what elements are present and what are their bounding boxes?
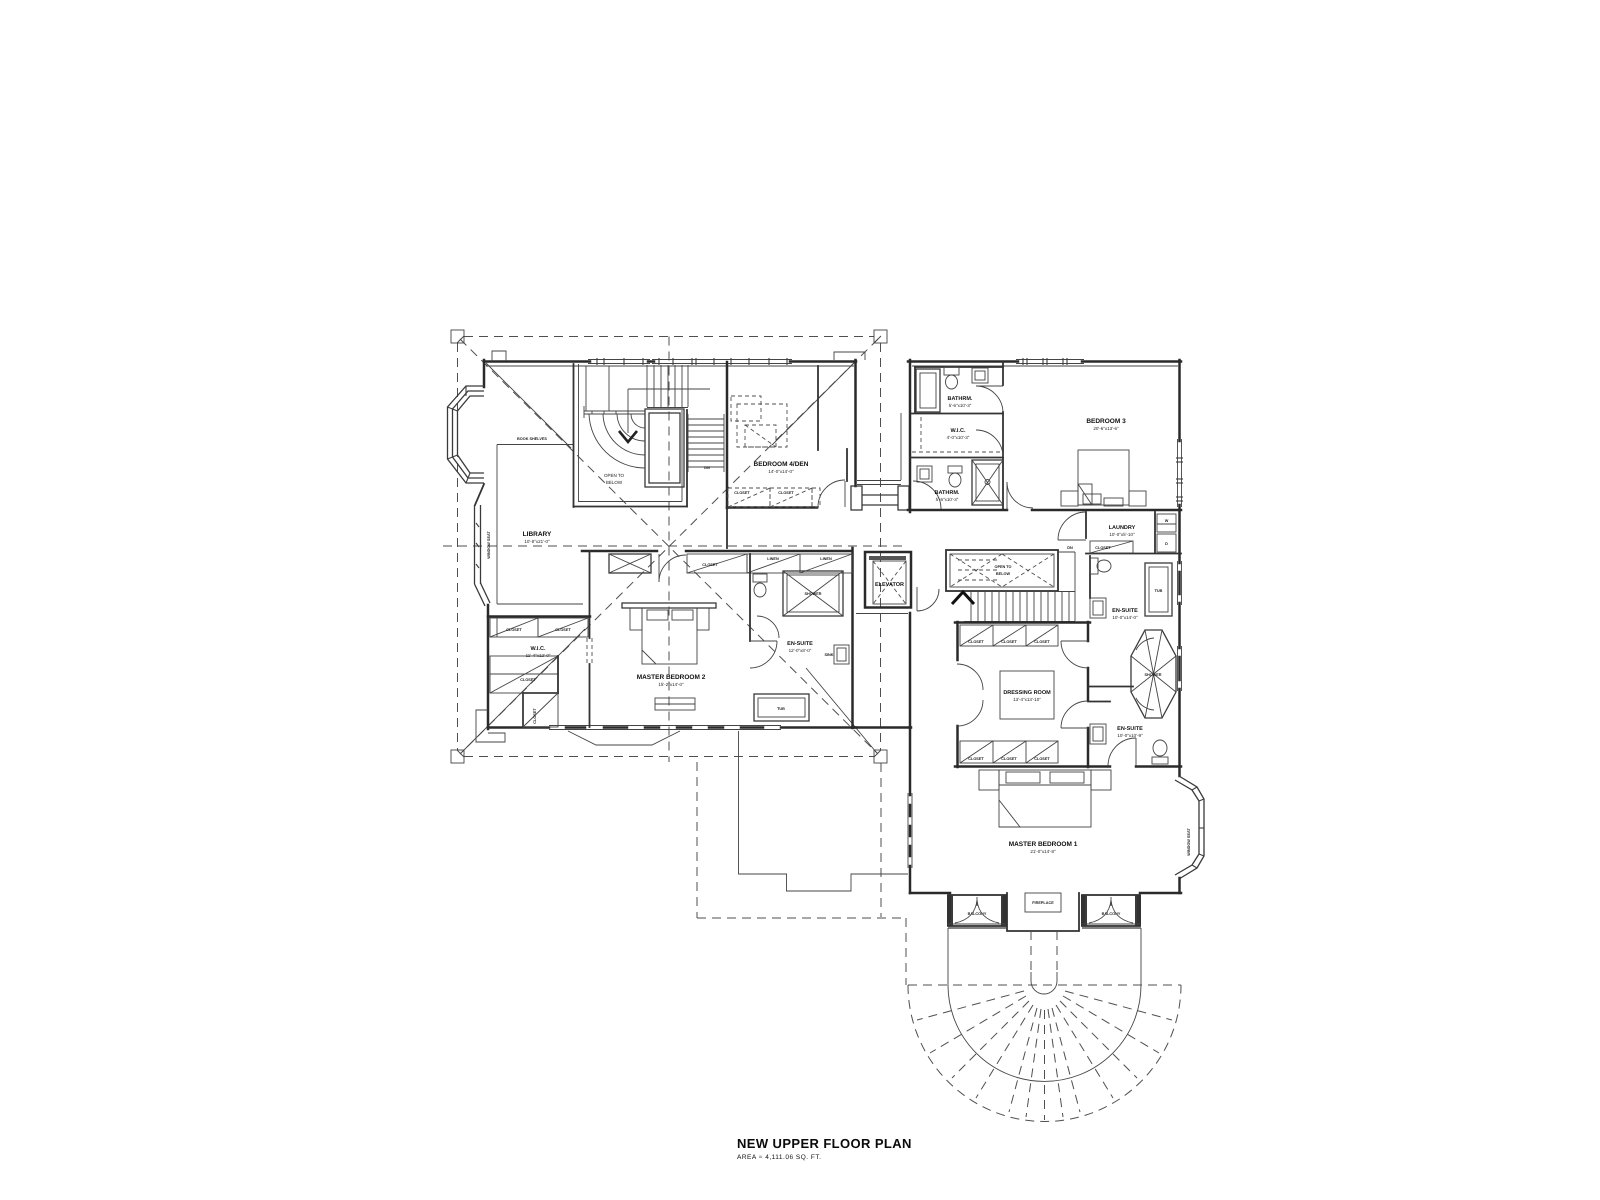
svg-text:CLOSET: CLOSET (778, 491, 794, 495)
svg-text:13'-4"x13'-10": 13'-4"x13'-10" (1013, 697, 1041, 702)
svg-text:LINEN: LINEN (820, 557, 832, 561)
svg-text:BEDROOM 3: BEDROOM 3 (1086, 418, 1126, 425)
svg-text:CLOSET: CLOSET (1034, 757, 1050, 761)
svg-text:BOOK SHELVES: BOOK SHELVES (517, 437, 547, 441)
svg-text:CLOSET: CLOSET (1001, 640, 1017, 644)
svg-text:5'-6"x10'-3": 5'-6"x10'-3" (949, 403, 972, 408)
svg-text:WINDOW SEAT: WINDOW SEAT (1187, 828, 1191, 856)
svg-text:MASTER BEDROOM 2: MASTER BEDROOM 2 (637, 674, 706, 681)
svg-text:D: D (1165, 542, 1168, 546)
svg-text:NEW UPPER FLOOR PLAN: NEW UPPER FLOOR PLAN (737, 1136, 912, 1151)
svg-text:10'-0"x5'-10": 10'-0"x5'-10" (1109, 532, 1135, 537)
svg-text:5'-6"x10'-3": 5'-6"x10'-3" (936, 497, 959, 502)
svg-text:LAUNDRY: LAUNDRY (1109, 525, 1136, 531)
svg-text:11'-4"x12'-0": 11'-4"x12'-0" (526, 653, 551, 658)
svg-text:W.I.C.: W.I.C. (951, 428, 966, 434)
svg-text:12'-0"x8'-0": 12'-0"x8'-0" (789, 648, 812, 653)
svg-text:MASTER BEDROOM 1: MASTER BEDROOM 1 (1009, 841, 1078, 848)
svg-text:DN: DN (1067, 546, 1073, 550)
svg-text:EN-SUITE: EN-SUITE (787, 641, 813, 647)
svg-text:BELOW: BELOW (996, 572, 1011, 576)
svg-text:OPEN TO: OPEN TO (604, 473, 625, 478)
svg-text:20'-6"x13'-6": 20'-6"x13'-6" (1093, 426, 1119, 431)
svg-text:CLOSET: CLOSET (734, 491, 750, 495)
svg-text:LIBRARY: LIBRARY (523, 531, 552, 538)
svg-text:BELOW: BELOW (606, 480, 623, 485)
svg-text:CLOSET: CLOSET (1001, 757, 1017, 761)
svg-text:W: W (1165, 519, 1169, 523)
svg-text:CLOSET: CLOSET (533, 708, 537, 724)
svg-text:CLOSET: CLOSET (1034, 640, 1050, 644)
svg-text:SHOWER: SHOWER (804, 592, 821, 596)
svg-text:4'-0"x10'-3": 4'-0"x10'-3" (947, 435, 970, 440)
svg-text:TUB: TUB (1155, 589, 1163, 593)
svg-text:14'-0"x14'-0": 14'-0"x14'-0" (768, 469, 794, 474)
svg-text:LINEN: LINEN (767, 557, 779, 561)
svg-text:CLOSET: CLOSET (506, 628, 522, 632)
svg-text:21'-0"x14'-8": 21'-0"x14'-8" (1030, 849, 1056, 854)
svg-text:10'-0"x10'-9": 10'-0"x10'-9" (1117, 733, 1143, 738)
svg-text:CLOSET: CLOSET (702, 563, 718, 567)
svg-text:BATHRM.: BATHRM. (935, 490, 960, 496)
svg-text:BEDROOM 4/DEN: BEDROOM 4/DEN (754, 461, 809, 468)
svg-text:BATHRM.: BATHRM. (948, 396, 973, 402)
svg-text:CLOSET: CLOSET (968, 640, 984, 644)
svg-text:EN-SUITE: EN-SUITE (1112, 608, 1138, 614)
svg-text:OPEN TO: OPEN TO (994, 565, 1011, 569)
svg-text:SINK: SINK (824, 653, 833, 657)
svg-text:FIREPLACE: FIREPLACE (1032, 901, 1054, 905)
svg-text:SHOWER: SHOWER (1144, 673, 1161, 677)
svg-text:W.I.C.: W.I.C. (531, 646, 546, 652)
svg-text:15'-2"x14'-0": 15'-2"x14'-0" (658, 682, 684, 687)
svg-text:WINDOW SEAT: WINDOW SEAT (487, 531, 491, 559)
svg-text:EN-SUITE: EN-SUITE (1117, 726, 1143, 732)
svg-text:10'-0"x14'-0": 10'-0"x14'-0" (1112, 615, 1138, 620)
svg-text:ELEVATOR: ELEVATOR (875, 582, 904, 588)
svg-text:DN: DN (704, 466, 710, 470)
svg-text:10'-8"x21'-0": 10'-8"x21'-0" (524, 539, 550, 544)
svg-text:CLOSET: CLOSET (1095, 546, 1111, 550)
svg-text:TUB: TUB (777, 707, 785, 711)
svg-text:CLOSET: CLOSET (555, 628, 571, 632)
svg-text:DRESSING ROOM: DRESSING ROOM (1003, 690, 1051, 696)
svg-text:CLOSET: CLOSET (968, 757, 984, 761)
svg-text:AREA = 4,111.06 SQ. FT.: AREA = 4,111.06 SQ. FT. (737, 1154, 821, 1161)
svg-text:CLOSET: CLOSET (520, 678, 536, 682)
